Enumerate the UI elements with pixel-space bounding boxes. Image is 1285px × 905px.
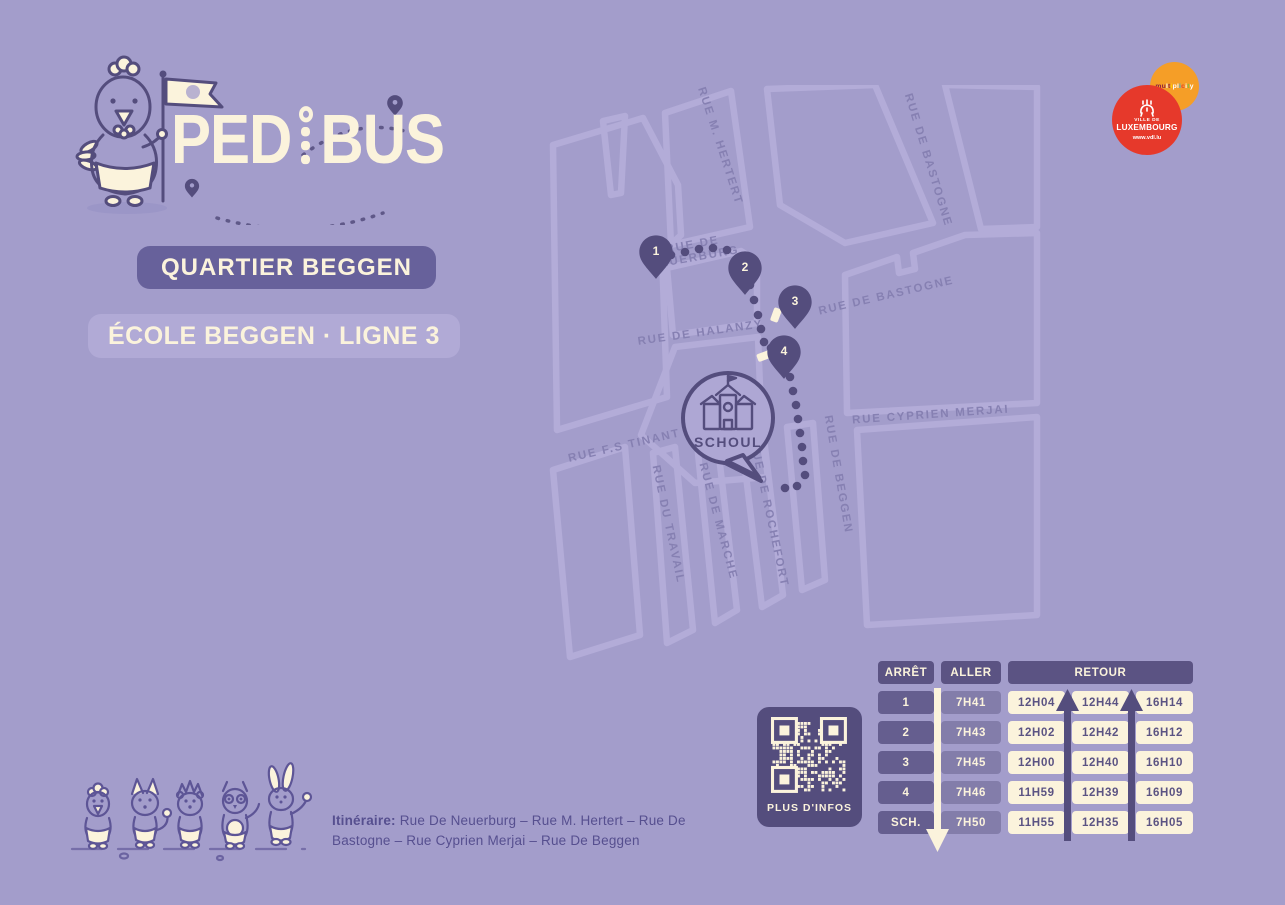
stop-cell: 1 bbox=[878, 691, 934, 714]
route-dot bbox=[789, 387, 798, 396]
stop-cell: 4 bbox=[878, 781, 934, 804]
ligne-badge: ÉCOLE BEGGEN · LIGNE 3 bbox=[88, 314, 460, 358]
retour-time: 16H10 bbox=[1136, 751, 1193, 774]
chicken-character bbox=[85, 784, 110, 849]
school-label: SCHOUL bbox=[694, 434, 762, 450]
svg-text:3: 3 bbox=[792, 294, 799, 308]
retour-time: 11H59 bbox=[1008, 781, 1065, 804]
route-dot bbox=[799, 457, 808, 466]
route-dot bbox=[781, 484, 790, 493]
retour-time: 12H04 bbox=[1008, 691, 1065, 714]
aller-time: 7H45 bbox=[941, 751, 1001, 774]
owl-character bbox=[222, 782, 259, 849]
ville-de-luxembourg-logo: VILLE DE LUXEMBOURG www.vdl.lu bbox=[1112, 85, 1182, 155]
street-blocks bbox=[553, 85, 1037, 657]
stop-cell: 3 bbox=[878, 751, 934, 774]
route-dot bbox=[794, 415, 803, 424]
route-map: RUE M. HERTERTRUE DE BASTOGNERUE DENEUER… bbox=[545, 85, 1045, 685]
retour-time: 12H02 bbox=[1008, 721, 1065, 744]
retour-time: 12H42 bbox=[1072, 721, 1129, 744]
street-label: RUE DE BASTOGNE bbox=[817, 275, 955, 318]
rabbit-character bbox=[267, 762, 311, 845]
aller-time: 7H41 bbox=[941, 691, 1001, 714]
route-dot bbox=[796, 429, 805, 438]
arret-header: ARRÊT bbox=[878, 661, 934, 684]
route-dot bbox=[792, 401, 801, 410]
route-dot bbox=[754, 311, 763, 320]
fox-character bbox=[132, 779, 171, 848]
vdl-url: www.vdl.lu bbox=[1133, 135, 1162, 141]
retour-time: 12H35 bbox=[1072, 811, 1129, 834]
route-dot bbox=[750, 296, 759, 305]
timetable: ARRÊTALLERRETOUR17H4112H0412H4416H1427H4… bbox=[878, 661, 1194, 861]
ring-icon bbox=[299, 106, 313, 122]
qr-label: PLUS D'INFOS bbox=[767, 802, 852, 814]
route-dot bbox=[798, 443, 807, 452]
quartier-badge: QUARTIER BEGGEN bbox=[137, 246, 436, 289]
stop-cell: SCH. bbox=[878, 811, 934, 834]
animal-characters bbox=[70, 752, 315, 864]
wordmark-ped: PED bbox=[171, 105, 291, 175]
qr-code[interactable] bbox=[771, 717, 849, 795]
route-i-icon bbox=[297, 105, 314, 164]
aller-time: 7H50 bbox=[941, 811, 1001, 834]
svg-text:2: 2 bbox=[742, 260, 749, 274]
hedgehog-character bbox=[177, 781, 203, 848]
qr-panel[interactable]: PLUS D'INFOS bbox=[757, 707, 862, 827]
retour-time: 12H39 bbox=[1072, 781, 1129, 804]
aller-time: 7H43 bbox=[941, 721, 1001, 744]
svg-text:4: 4 bbox=[781, 344, 788, 358]
street-label: RUE DE BEGGEN bbox=[822, 414, 855, 534]
stop-cell: 2 bbox=[878, 721, 934, 744]
aller-header: ALLER bbox=[941, 661, 1001, 684]
retour-time: 16H14 bbox=[1136, 691, 1193, 714]
pedibus-poster: PED BUS QUARTIER BEGGEN ÉCOLE BEGGEN · L… bbox=[0, 0, 1285, 905]
retour-header: RETOUR bbox=[1008, 661, 1193, 684]
quartier-badge-label: QUARTIER BEGGEN bbox=[161, 254, 412, 282]
route-dot bbox=[760, 338, 769, 347]
svg-text:1: 1 bbox=[653, 244, 660, 258]
pedibus-wordmark: PED BUS bbox=[171, 105, 444, 175]
stop-pin-4: 4 bbox=[767, 335, 800, 379]
vdl-line2: LUXEMBOURG bbox=[1116, 123, 1177, 132]
retour-time: 16H12 bbox=[1136, 721, 1193, 744]
itinerary-label: Itinéraire: bbox=[332, 813, 396, 828]
route-dot bbox=[757, 325, 766, 334]
route-dot bbox=[695, 245, 704, 254]
stop-pin-3: 3 bbox=[778, 285, 811, 329]
route-dot bbox=[723, 246, 732, 255]
aller-time: 7H46 bbox=[941, 781, 1001, 804]
lion-icon bbox=[1136, 99, 1158, 117]
route-dot bbox=[793, 482, 802, 491]
retour-time: 16H09 bbox=[1136, 781, 1193, 804]
ligne-badge-label: ÉCOLE BEGGEN · LIGNE 3 bbox=[108, 322, 440, 351]
retour-time: 16H05 bbox=[1136, 811, 1193, 834]
retour-time: 12H40 bbox=[1072, 751, 1129, 774]
route-dot bbox=[709, 244, 718, 253]
route-dot bbox=[801, 471, 810, 480]
retour-time: 11H55 bbox=[1008, 811, 1065, 834]
pedibus-logo: PED BUS bbox=[75, 55, 495, 225]
route-dot bbox=[681, 248, 690, 257]
itinerary-text: Itinéraire: Rue De Neuerburg – Rue M. He… bbox=[332, 811, 724, 852]
retour-time: 12H00 bbox=[1008, 751, 1065, 774]
retour-time: 12H44 bbox=[1072, 691, 1129, 714]
wordmark-bus: BUS bbox=[320, 105, 444, 175]
